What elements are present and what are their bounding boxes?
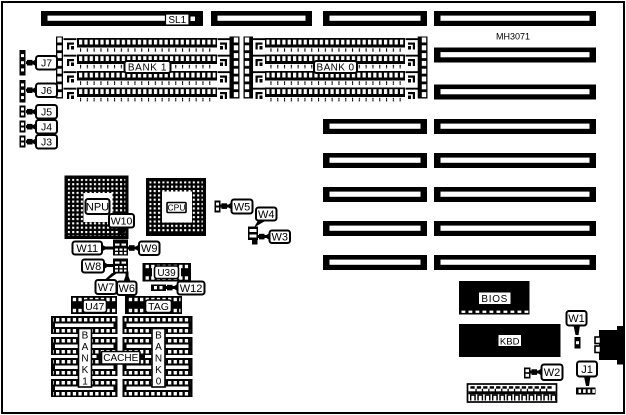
- svg-text:K: K: [155, 365, 162, 376]
- svg-text:W4: W4: [258, 209, 275, 221]
- svg-text:J5: J5: [41, 106, 52, 118]
- svg-text:W7: W7: [98, 282, 115, 294]
- svg-text:J3: J3: [41, 136, 52, 148]
- svg-text:W3: W3: [272, 232, 289, 244]
- svg-text:1: 1: [82, 377, 88, 388]
- svg-text:J1: J1: [581, 364, 593, 376]
- svg-text:K: K: [82, 365, 89, 376]
- svg-text:W1: W1: [568, 313, 585, 325]
- svg-text:BIOS: BIOS: [481, 294, 508, 305]
- svg-text:CACHE: CACHE: [103, 353, 138, 364]
- svg-text:W10: W10: [111, 215, 133, 227]
- svg-text:BANK 1: BANK 1: [128, 63, 167, 74]
- svg-text:U39: U39: [157, 268, 176, 279]
- svg-text:0: 0: [156, 377, 162, 388]
- svg-text:KBD: KBD: [500, 336, 520, 347]
- svg-text:A: A: [82, 342, 89, 353]
- svg-text:CPU: CPU: [168, 203, 186, 213]
- svg-text:J7: J7: [41, 57, 52, 69]
- svg-text:J4: J4: [41, 121, 52, 133]
- svg-text:B: B: [82, 331, 89, 342]
- svg-text:W11: W11: [76, 243, 98, 255]
- svg-text:B: B: [155, 331, 162, 342]
- svg-text:N: N: [81, 354, 88, 365]
- svg-text:W6: W6: [119, 283, 136, 295]
- svg-text:TAG: TAG: [148, 301, 169, 313]
- svg-text:A: A: [155, 342, 162, 353]
- svg-text:MH3071: MH3071: [496, 32, 530, 42]
- svg-text:SL1: SL1: [168, 15, 186, 26]
- svg-text:W8: W8: [85, 261, 102, 273]
- svg-text:W9: W9: [141, 243, 158, 255]
- svg-text:J6: J6: [41, 85, 52, 97]
- svg-text:W5: W5: [234, 201, 251, 213]
- svg-text:NPU: NPU: [86, 201, 109, 213]
- svg-text:W12: W12: [180, 283, 203, 295]
- svg-text:N: N: [155, 354, 162, 365]
- svg-text:W2: W2: [544, 367, 561, 379]
- svg-text:U47: U47: [85, 301, 104, 313]
- svg-text:BANK 0: BANK 0: [317, 63, 355, 74]
